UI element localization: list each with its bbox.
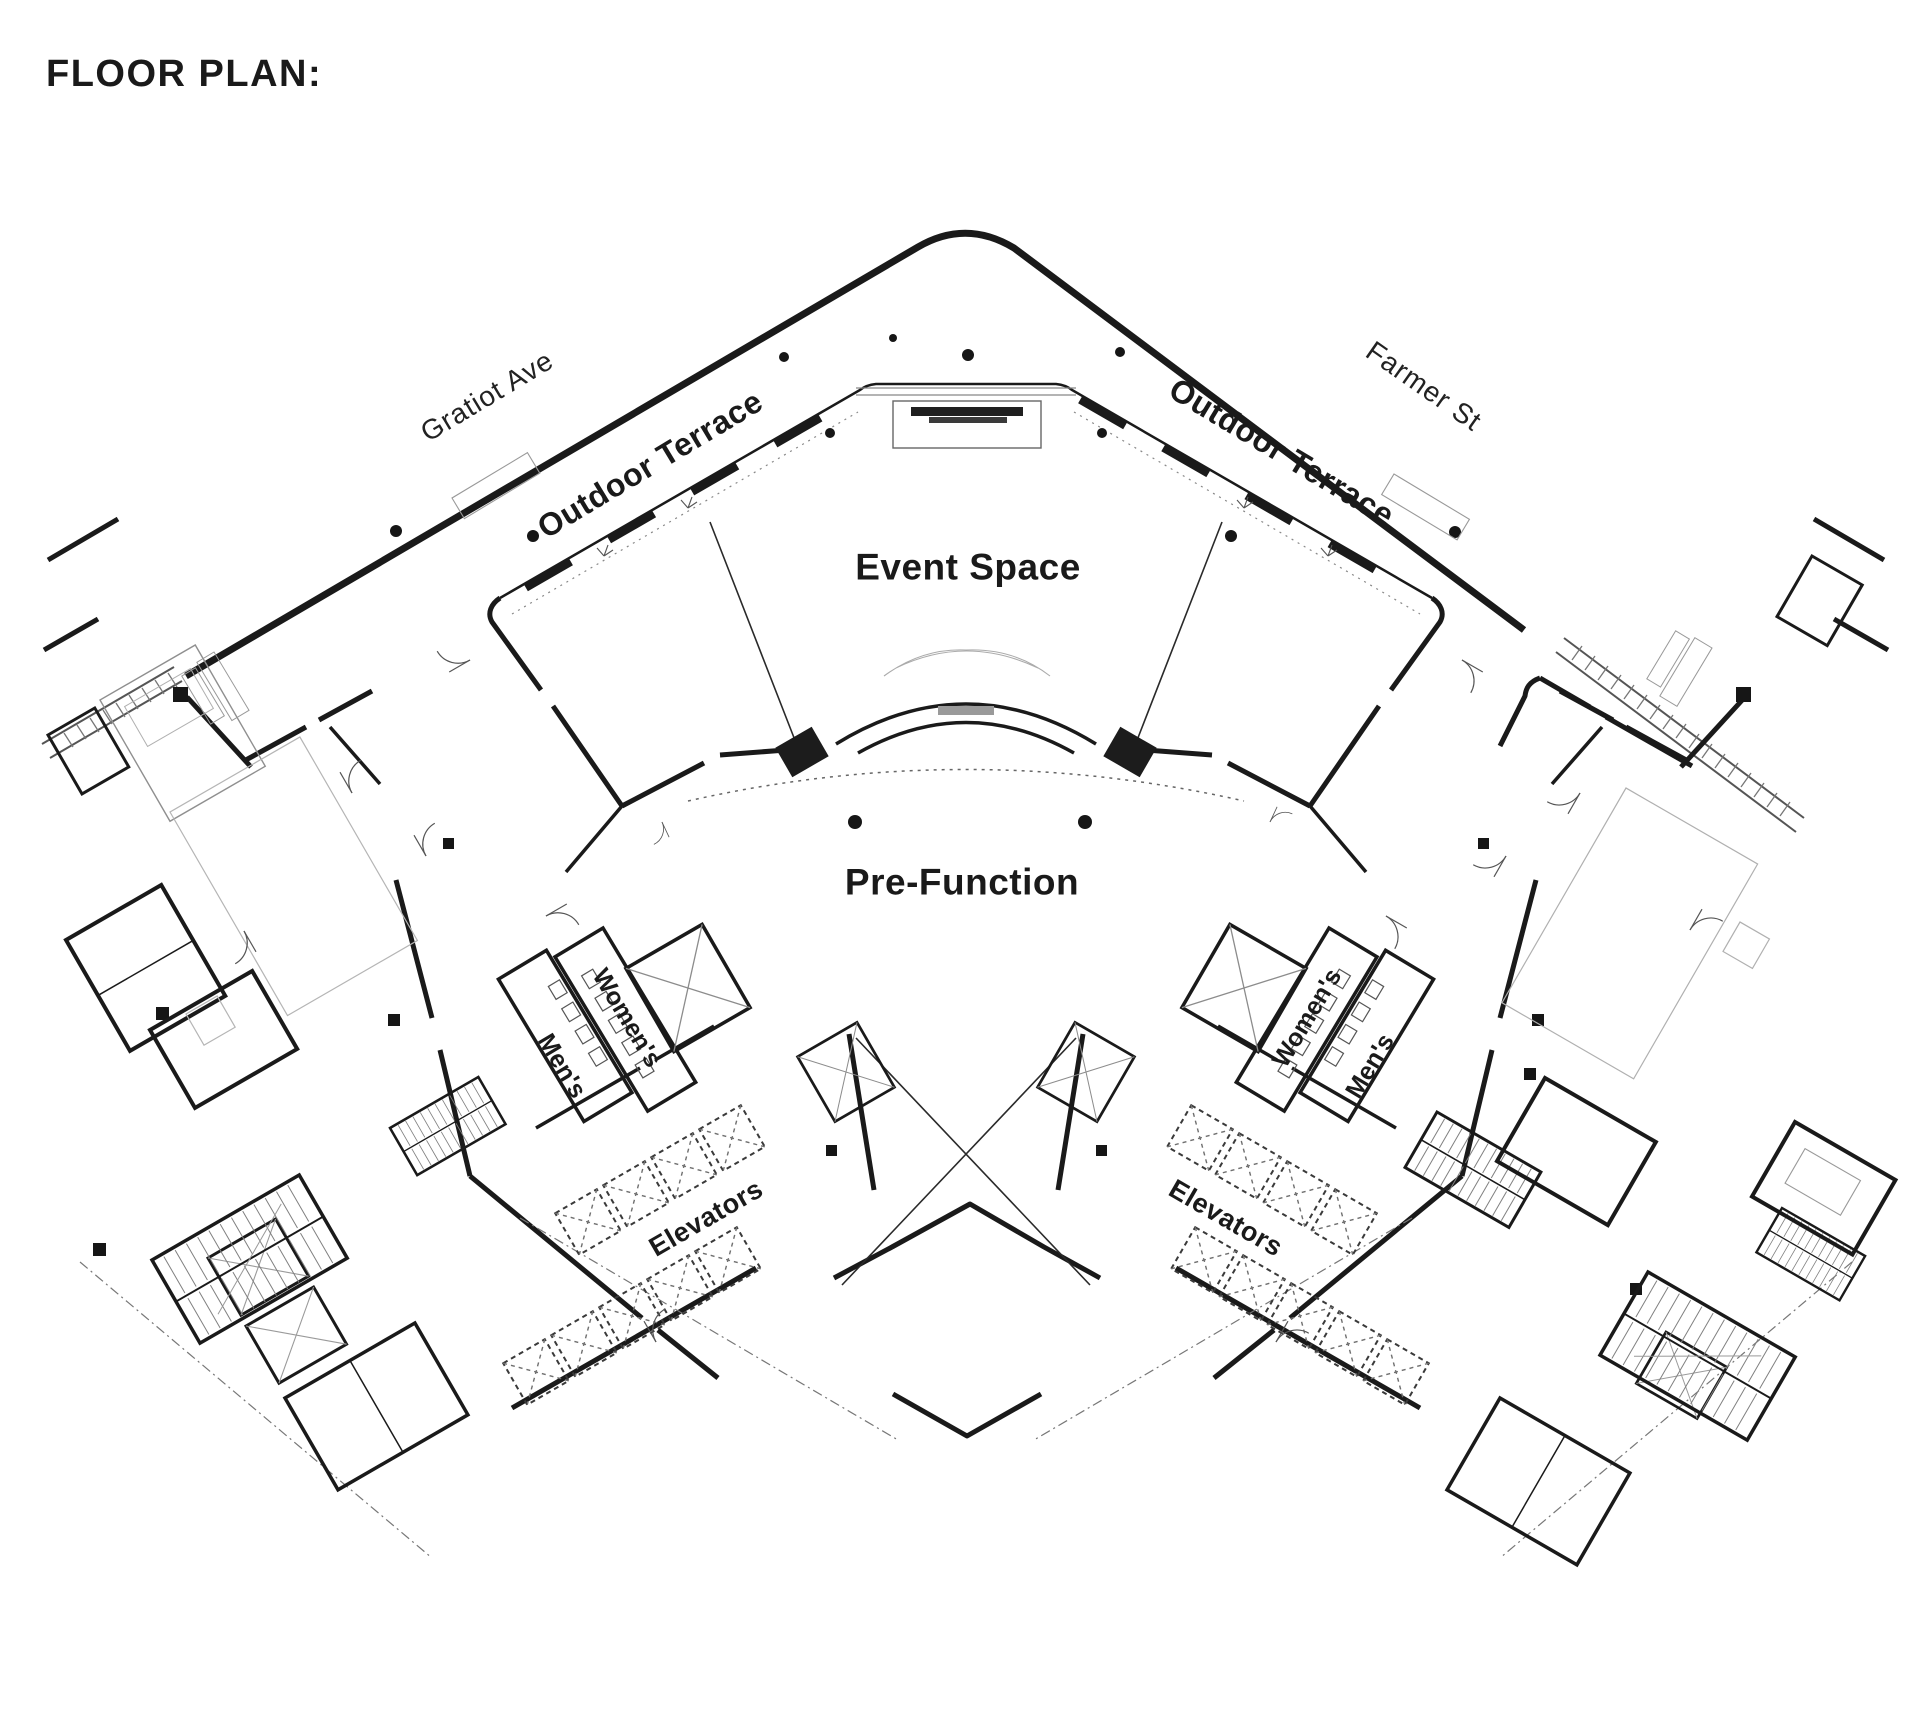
ceiling-cloud [884,650,1050,676]
faint-floor-left [170,737,417,1016]
wing-room [1497,1078,1656,1225]
room-label-pre-function: Pre-Function [845,862,1079,903]
floor-plan-page: FLOOR PLAN: Gratiot Ave Farmer St Outdoo… [0,0,1920,1710]
room-label-event-space: Event Space [855,547,1081,588]
prefunction-dotted-arc [688,770,1244,802]
door-swing-icon [546,904,579,937]
stage-bar-2 [929,417,1007,423]
elevator-bank-right [1167,1105,1429,1405]
faint-square [1723,922,1769,968]
partition-pocket-left [775,727,828,777]
wing-room [1777,556,1862,646]
door-swing-icon [414,823,447,856]
door-swing-icon [1690,909,1723,942]
wing-room [285,1323,468,1490]
stair-left [152,1175,347,1343]
service-shaft [246,1287,347,1383]
faint-floor-right [1502,788,1758,1079]
planter-icon [681,497,697,508]
floor-plan-canvas: FLOOR PLAN: Gratiot Ave Farmer St Outdoo… [0,0,1920,1710]
faint-room-outline [100,645,265,821]
door-swing-icon [1374,916,1407,949]
room-label-terrace-right: Outdoor Terrace [1163,371,1401,534]
door-swing-icon [1450,660,1483,693]
street-edge-lines [42,638,1804,832]
dash-dot-lines [80,1218,1852,1558]
door-swing-icon [647,822,669,844]
door-swing-icon [1547,781,1580,814]
partition-track-lines [710,522,1222,1285]
column-squares [93,687,1751,1295]
outer-boundary-wall [186,233,1524,676]
partition-pocket-right [1103,727,1156,777]
street-label-gratiot: Gratiot Ave [415,344,559,447]
stage-bar [911,407,1023,416]
door-swing-icon [340,760,373,793]
elevator-bank-left [503,1105,765,1405]
planter-icon [597,545,613,556]
room-label-mens-right: Men's [1340,1029,1400,1103]
wing-room [1752,1122,1895,1254]
terrace-furniture-right [1643,627,1712,706]
apex-flat-wall-lines [856,388,1076,395]
restroom-block-right [1236,919,1433,1142]
door-swing-icon [223,931,256,964]
curved-feature-bar [938,706,994,715]
page-title: FLOOR PLAN: [46,53,322,95]
wing-room [1447,1398,1630,1565]
walls-medium [330,704,1602,1128]
street-label-farmer: Farmer St [1360,335,1487,437]
door-swing-icon [1270,807,1292,829]
stair-right [1600,1272,1795,1440]
restroom-block-left [498,919,695,1142]
shaft-left-2 [798,1022,895,1121]
door-swing-icon [437,639,470,672]
shaft-right-2 [1038,1022,1135,1121]
street-hatch-right [1572,646,1790,816]
room-label-mens-left: Men's [532,1029,592,1103]
wing-room [66,885,225,1051]
